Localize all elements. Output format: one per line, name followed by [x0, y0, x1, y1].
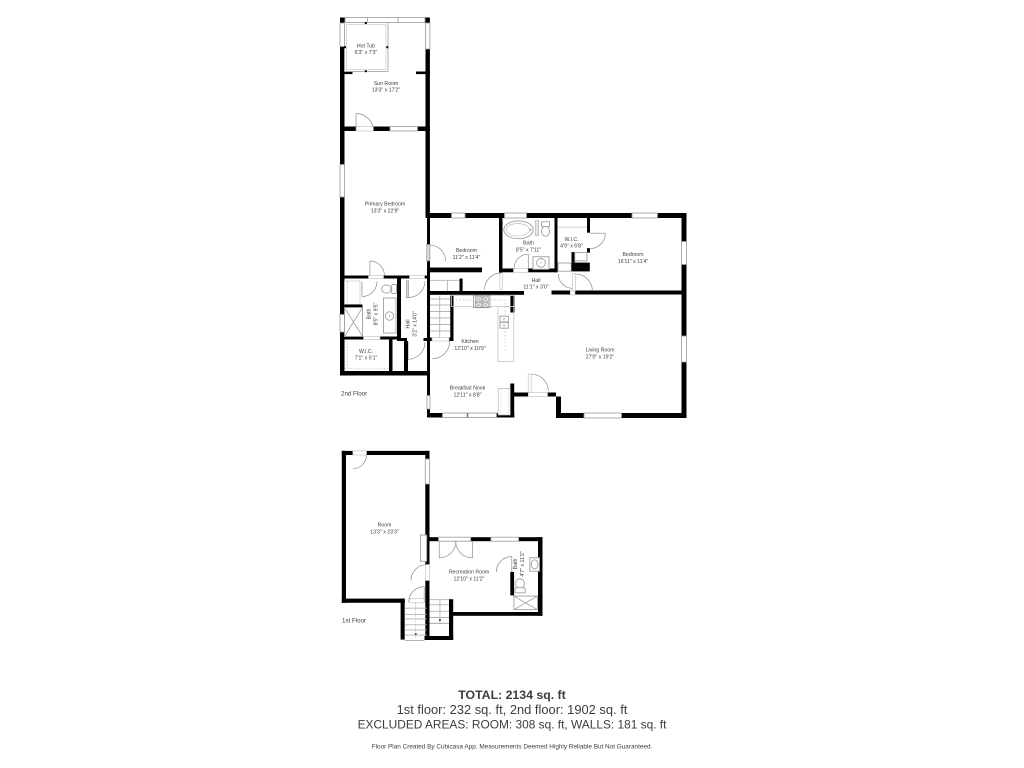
svg-text:W.I.C.: W.I.C. [359, 349, 373, 355]
svg-text:Bedroom: Bedroom [456, 248, 477, 254]
svg-text:6'3" x 7'3": 6'3" x 7'3" [355, 50, 378, 56]
svg-text:Room: Room [378, 523, 392, 529]
svg-text:27'0" x 19'2": 27'0" x 19'2" [586, 355, 615, 361]
svg-text:Kitchen: Kitchen [461, 339, 478, 345]
svg-text:13'3" x 22'9": 13'3" x 22'9" [371, 209, 400, 215]
svg-text:Primary Bedroom: Primary Bedroom [365, 202, 405, 208]
svg-text:Bath: Bath [513, 559, 519, 570]
svg-text:Breakfast Nook: Breakfast Nook [450, 386, 486, 392]
svg-text:4'9" x 6'8": 4'9" x 6'8" [560, 244, 583, 250]
svg-text:13'3" x 17'2": 13'3" x 17'2" [372, 88, 401, 94]
svg-text:Sun Room: Sun Room [374, 81, 399, 87]
svg-text:8'5" x 9'5": 8'5" x 9'5" [374, 303, 380, 326]
svg-text:Recreation Room: Recreation Room [449, 570, 489, 576]
svg-text:11'1" x 3'0": 11'1" x 3'0" [523, 284, 548, 290]
svg-text:12'11" x 8'8": 12'11" x 8'8" [453, 393, 481, 399]
svg-text:Floor Plan Created By Cubicasa: Floor Plan Created By Cubicasa App. Meas… [372, 744, 653, 751]
svg-text:Bath: Bath [523, 241, 534, 247]
svg-text:Hall: Hall [532, 278, 541, 284]
svg-text:16'11" x 11'4": 16'11" x 11'4" [618, 259, 649, 265]
svg-text:12'10" x 10'9": 12'10" x 10'9" [454, 346, 485, 352]
svg-text:Bedroom: Bedroom [622, 252, 643, 258]
svg-text:Hot Tub: Hot Tub [357, 44, 375, 50]
svg-text:Hall: Hall [406, 320, 412, 329]
svg-text:4'7" x 11'2": 4'7" x 11'2" [520, 551, 526, 576]
svg-text:13'3" x 23'3": 13'3" x 23'3" [370, 530, 399, 536]
svg-text:12'10" x 11'2": 12'10" x 11'2" [454, 577, 485, 583]
svg-text:1st floor: 232 sq. ft, 2nd flo: 1st floor: 232 sq. ft, 2nd floor: 1902 s… [397, 702, 628, 717]
svg-text:2nd Floor: 2nd Floor [341, 391, 367, 398]
svg-text:EXCLUDED AREAS: ROOM: 308 sq.: EXCLUDED AREAS: ROOM: 308 sq. ft, WALLS:… [358, 718, 668, 732]
svg-text:7'1" x 5'1": 7'1" x 5'1" [355, 356, 378, 362]
svg-text:TOTAL: 2134 sq. ft: TOTAL: 2134 sq. ft [458, 688, 566, 702]
svg-text:8'5" x 7'11": 8'5" x 7'11" [516, 248, 541, 254]
svg-text:W.I.C.: W.I.C. [564, 237, 578, 243]
svg-text:Bath: Bath [367, 309, 373, 320]
svg-text:11'2" x 11'4": 11'2" x 11'4" [453, 255, 481, 261]
svg-text:Living Room: Living Room [586, 348, 615, 354]
svg-text:3'2" x 14'0": 3'2" x 14'0" [413, 311, 419, 337]
svg-text:1st Floor: 1st Floor [342, 618, 366, 625]
